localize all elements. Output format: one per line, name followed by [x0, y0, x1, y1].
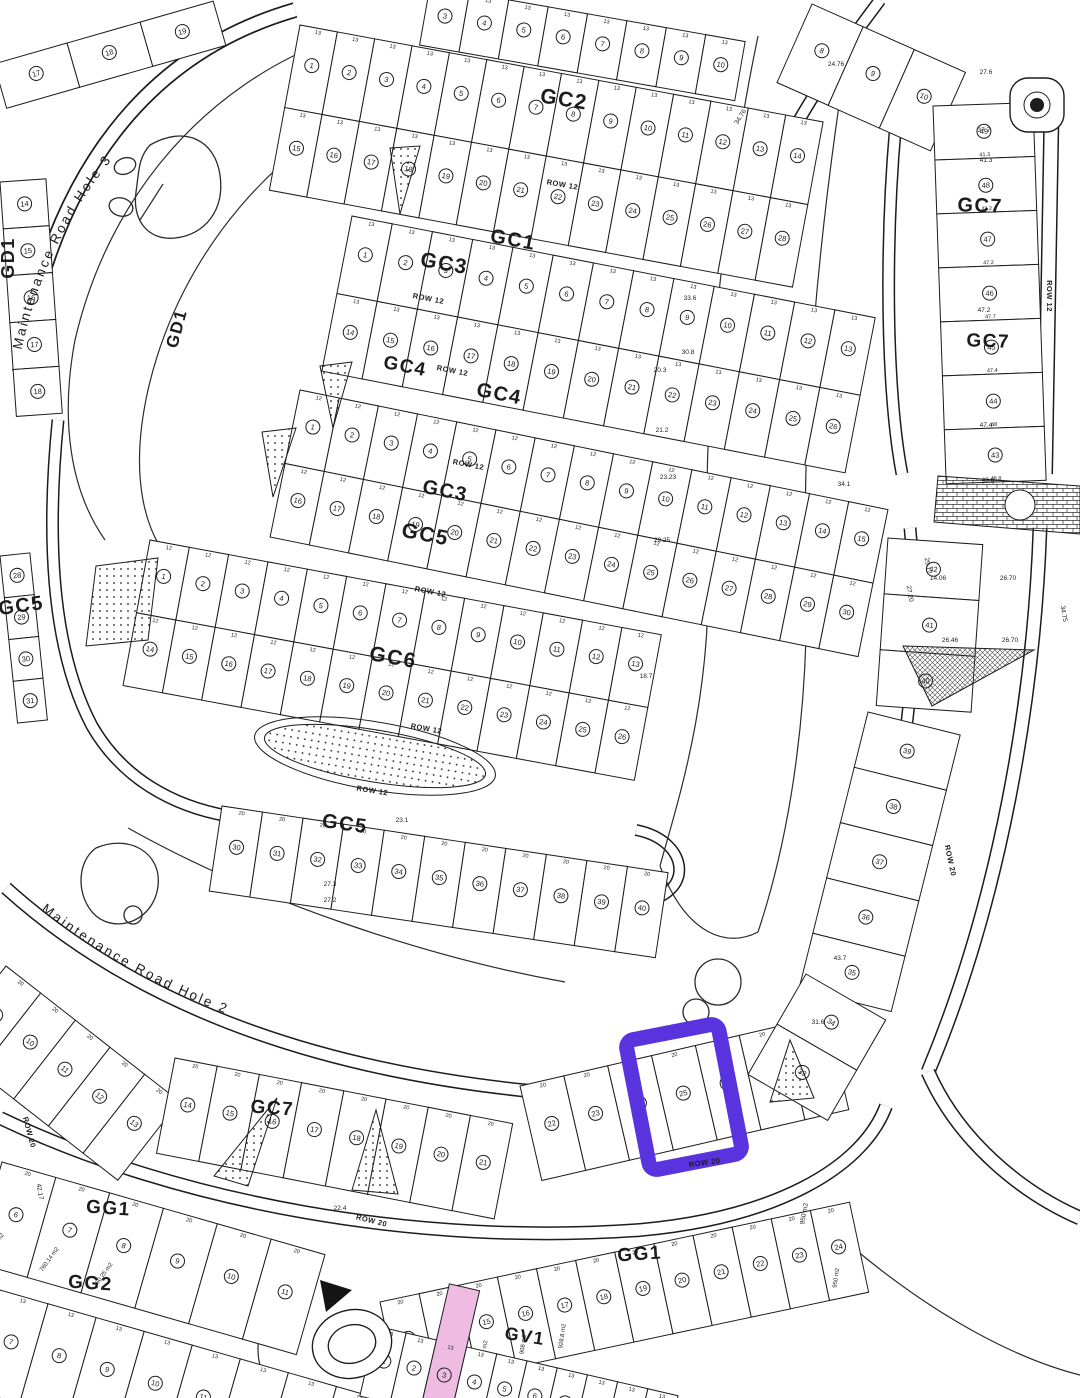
- lot-width-dim: 12: [637, 633, 644, 640]
- lot-width-dim: 12: [707, 475, 714, 482]
- lot-width-dim: 20: [522, 853, 529, 860]
- lot-width-dim: 13: [598, 168, 605, 175]
- lot-width-dim: 12: [574, 525, 581, 532]
- lot-width-dim: 13: [795, 385, 802, 392]
- lot-width-dim: 13: [374, 126, 381, 133]
- plot-number: 28: [13, 571, 22, 581]
- dimension-label: 23.23: [660, 474, 677, 481]
- row-marker-label: ROW 12: [356, 784, 389, 798]
- plot-number: 17: [332, 503, 342, 513]
- lot-width-dim: 13: [674, 361, 681, 368]
- lot-width-dim: 13: [554, 338, 561, 345]
- lot-width-dim: 13: [411, 133, 418, 140]
- row-marker-label: ROW 20: [943, 844, 958, 877]
- dimension-label: 43.7: [834, 955, 847, 962]
- lot-width-dim: 12: [270, 640, 277, 647]
- section-label-gc5-9: GC5: [0, 592, 45, 620]
- dimension-label: 34.1: [838, 481, 851, 488]
- plot-number: 20: [436, 1149, 446, 1159]
- plot-number: 16: [293, 495, 303, 505]
- dimension-label: 37.7: [978, 127, 991, 134]
- lot-width-dim: 13: [715, 369, 722, 376]
- plot-number: 12: [803, 336, 813, 346]
- section-label-gd1-11: GD1: [162, 307, 191, 350]
- lot-width-dim: 12: [427, 669, 434, 676]
- lot-width-dim: 12: [589, 451, 596, 458]
- roundabout-topright-center: [1030, 98, 1044, 112]
- lot-width-dim: 13: [682, 33, 689, 40]
- lot-width-dim: 12: [598, 625, 605, 632]
- plot-number: 17: [30, 340, 39, 350]
- section-label-gg1-17: GG1: [617, 1242, 663, 1266]
- lot-width-dim: 13: [730, 292, 737, 299]
- lot-width-dim: 20: [400, 835, 407, 842]
- plot-number: 21: [478, 1157, 488, 1167]
- lot-width-dim: 20: [514, 1274, 521, 1281]
- plot-number: 23: [567, 551, 577, 561]
- lot-width-dim: 12: [785, 491, 792, 498]
- road-bottomright-edge: [856, 1250, 1080, 1375]
- lot-width-dim: 12: [205, 552, 212, 559]
- dimension-label: 21.2: [656, 427, 669, 434]
- lot-width-dim: 12: [746, 483, 753, 490]
- plot-number: 16: [329, 150, 339, 160]
- lot-width-dim: 12: [323, 574, 330, 581]
- lot-width-dim: 20: [710, 1233, 717, 1240]
- hole3-green: [135, 136, 220, 238]
- plot-number: 43: [991, 450, 1000, 459]
- dimension-label: 22.4: [334, 1205, 347, 1212]
- lot-width-dim: 20: [279, 817, 286, 824]
- lot-width-dim: 13: [658, 1394, 665, 1398]
- lot-width-dim: 12: [362, 582, 369, 589]
- plot-number: 23: [708, 398, 718, 408]
- lot-width-dim: 13: [393, 307, 400, 314]
- road-corner-arc-fill: [928, 1072, 1080, 1218]
- plot-number: 47: [983, 235, 992, 244]
- plot-band-topleft-cells: 171819: [0, 1, 226, 108]
- dimension-label: 20.3: [654, 367, 667, 374]
- plot-number: 11: [552, 644, 561, 654]
- plot-number: 20: [478, 178, 488, 188]
- lot-width-dim: 12: [152, 618, 159, 625]
- lot-width-dim: 12: [354, 403, 361, 410]
- lot-width-dim: 13: [725, 106, 732, 113]
- lot-width-dim: 12: [864, 507, 871, 514]
- plot-number: 17: [309, 1124, 319, 1134]
- plot-number: 25: [788, 413, 798, 423]
- plot-number: 18: [371, 511, 381, 521]
- plot-number: 27: [740, 226, 750, 236]
- plot-number: 34: [394, 867, 404, 877]
- plot-number: 14: [145, 644, 155, 654]
- lot-width-dim: 13: [426, 51, 433, 58]
- plot-number: 31: [26, 696, 35, 706]
- lot-width-dim: 12: [511, 435, 518, 442]
- lot-width-dim: 13: [336, 119, 343, 126]
- dimension-label: 24.76: [828, 61, 845, 68]
- lot-width-dim: 13: [448, 237, 455, 244]
- plot-number: 24: [748, 405, 758, 415]
- section-label-gc7-14: GC7: [250, 1097, 295, 1121]
- plot-number: 16: [426, 343, 436, 353]
- plot-number: 19: [547, 366, 557, 376]
- dimension-label: 41.3: [980, 157, 993, 164]
- lot-width-dim: 13: [785, 202, 792, 209]
- dimension-label: 27.3: [324, 881, 337, 888]
- plot-number: 10: [716, 60, 726, 70]
- lot-width-dim: 12: [558, 618, 565, 625]
- lot-width-dim: 13: [594, 346, 601, 353]
- plot-number: 48: [981, 181, 990, 190]
- plot-number: 10: [661, 494, 671, 504]
- lot-width-dim: 13: [563, 12, 570, 19]
- lot-width-dim: 20: [441, 841, 448, 848]
- section-label-gc7-13: GC7: [966, 330, 1010, 353]
- plot-number: 14: [793, 151, 803, 161]
- plot-number: 30: [232, 842, 242, 852]
- lot-width-dim: 12: [433, 419, 440, 426]
- plot-number: 18: [302, 673, 312, 683]
- lot-width-dim: 20: [475, 1283, 482, 1290]
- dimension-label: 47.2: [978, 307, 991, 314]
- hole3-bunker-2: [107, 195, 135, 219]
- lot-width-dim: 12: [191, 625, 198, 632]
- lot-width-dim: 20: [553, 1266, 560, 1273]
- lot-width-dim: 13: [649, 276, 656, 283]
- lot-width-dim: 13: [486, 147, 493, 154]
- lot-width-dim: 20: [360, 1096, 367, 1103]
- plot-number: 14: [817, 526, 827, 536]
- plot-number: 15: [185, 651, 195, 661]
- plot-number: 19: [441, 171, 451, 181]
- hole3-flag-line: [140, 184, 163, 220]
- map-canvas[interactable]: 3134135136137138139131013113213313413513…: [0, 0, 1080, 1398]
- lot-width-dim: 13: [448, 140, 455, 147]
- plot-number: 38: [556, 891, 566, 901]
- road-label-maintenance-hole2: Maintenance Road Hole 2: [39, 901, 231, 1017]
- plot-number: 41: [925, 620, 934, 630]
- lot-width-dim: 12: [770, 565, 777, 572]
- lot-width-dim: 20: [192, 1063, 199, 1070]
- plot-number: 35: [434, 873, 444, 883]
- dimension-label: 26.46: [942, 637, 959, 644]
- plot-number: 19: [342, 681, 352, 691]
- plot-number: 22: [528, 543, 538, 553]
- lot-width-dim: 13: [650, 92, 657, 99]
- plot-number: 24: [538, 717, 548, 727]
- lot-width-dim: 12: [283, 567, 290, 574]
- plot-number: 13: [755, 144, 765, 154]
- lot-width-dim: 12: [300, 469, 307, 476]
- lot-width-dim: 12: [550, 443, 557, 450]
- lot-width-dim: 13: [851, 315, 858, 322]
- lot-width-dim: 13: [635, 175, 642, 182]
- lot-width-dim: 20: [827, 1208, 834, 1215]
- plot-number: 23: [499, 710, 509, 720]
- hole2-pond: [81, 843, 158, 924]
- lot-width-dim: 13: [524, 5, 531, 12]
- plot-number: 24: [628, 205, 638, 215]
- plot-number: 14: [20, 199, 29, 209]
- lot-width-dim: 13: [314, 30, 321, 37]
- plot-number: 18: [352, 1133, 362, 1143]
- lot-width-dim: 12: [506, 683, 513, 690]
- lot-width-dim: 20: [481, 847, 488, 854]
- road-corner-arc: [928, 1072, 1080, 1218]
- plot-stack-left-strip: 28293031: [0, 553, 47, 723]
- lot-width-dim: 13: [464, 58, 471, 65]
- plot-bands: 3134135136137138139131013113213313413513…: [0, 0, 965, 1398]
- plot-number: 10: [513, 637, 523, 647]
- section-label-gc7-12: GC7: [957, 194, 1003, 218]
- lot-width-dim: 13: [538, 71, 545, 78]
- lot-width-dim: 13: [710, 189, 717, 196]
- dimension-label: 27.2: [324, 897, 337, 904]
- lot-width-dim: 13: [673, 182, 680, 189]
- lot-width-dim: 13: [353, 299, 360, 306]
- lot-width-dim: 12: [244, 560, 251, 567]
- lot-width-dim: 12: [629, 459, 636, 466]
- crossing-roundabout: [1005, 490, 1035, 520]
- dimension-label: 14.06: [930, 575, 947, 582]
- lot-width-dim: 12: [480, 603, 487, 610]
- plot-number: 15: [225, 1108, 235, 1118]
- lot-width-dim: 12: [466, 676, 473, 683]
- dimension-label: 18.7: [640, 673, 653, 680]
- plot-number: 23: [590, 199, 600, 209]
- lot-width-dim: 20: [436, 1291, 443, 1298]
- lot-width-dim: 13: [688, 99, 695, 106]
- plot-number: 22: [667, 390, 677, 400]
- lot-width-dim: 12: [339, 477, 346, 484]
- lot-width-dim: 13: [642, 26, 649, 33]
- plot-band-arc-left: 9201020112012201320: [0, 966, 179, 1180]
- lot-width-dim: 12: [584, 698, 591, 705]
- lot-width-dim: 13: [770, 300, 777, 307]
- lot-width-dim: 12: [614, 533, 621, 540]
- lot-width-dim: 13: [810, 307, 817, 314]
- plot-number: 14: [345, 327, 355, 337]
- plot-number: 21: [516, 185, 526, 195]
- lot-width-dim: 13: [634, 354, 641, 361]
- plot-number: 18: [506, 359, 516, 369]
- plot-number: 30: [842, 607, 852, 617]
- dimension-label: 27.6: [980, 69, 993, 76]
- plot-number: 37: [516, 885, 526, 895]
- lot-width-dim: 13: [576, 78, 583, 85]
- dimension-label: 26.70: [1002, 637, 1019, 644]
- plot-number: 25: [646, 567, 656, 577]
- plot-number: 13: [843, 344, 853, 354]
- lot-width-dim: 20: [671, 1241, 678, 1248]
- dimension-label: 26.70: [1000, 575, 1017, 582]
- lot-width-dim: 20: [487, 1121, 494, 1128]
- plot-number: 28: [763, 591, 773, 601]
- plot-number: 20: [381, 688, 391, 698]
- lot-width-dim: 12: [545, 691, 552, 698]
- dimension-label: 29.25: [654, 537, 671, 544]
- plot-number: 27: [724, 583, 734, 593]
- lot-width-dim: 12: [825, 499, 832, 506]
- plot-number: 22: [460, 702, 470, 712]
- plot-number: 18: [33, 387, 42, 397]
- lot-width-dim: 12: [348, 654, 355, 661]
- plot-number: 10: [643, 123, 653, 133]
- plot-number: 17: [466, 351, 476, 361]
- plot-number: 12: [591, 651, 601, 661]
- lot-width-dim: 20: [403, 1105, 410, 1112]
- section-label-gg2-16: GG2: [67, 1271, 113, 1295]
- lot-width-dim: 12: [472, 427, 479, 434]
- lot-width-dim: 12: [810, 573, 817, 580]
- lot-width-dim: 13: [523, 154, 530, 161]
- plot-number: 26: [828, 421, 838, 431]
- plot-number: 16: [224, 659, 234, 669]
- plot-number: 19: [394, 1141, 404, 1151]
- plot-number: 26: [685, 575, 695, 585]
- lot-width-dim: 20: [788, 1216, 795, 1223]
- plot-number: 36: [475, 879, 485, 889]
- lot-width-dim: 13: [299, 112, 306, 119]
- plot-number: 17: [366, 157, 376, 167]
- lot-width-dim: 20: [562, 859, 569, 866]
- plot-number: 15: [292, 143, 302, 153]
- plot-number: 32: [313, 854, 323, 864]
- lot-width-dim: 20: [276, 1080, 283, 1087]
- lot-width-dim: 13: [352, 37, 359, 44]
- plot-number: 21: [420, 695, 430, 705]
- lot-width-dim: 13: [721, 40, 728, 47]
- plot-number: 15: [857, 534, 867, 544]
- plot-number: 11: [681, 130, 690, 140]
- lot-width-dim: 20: [238, 811, 245, 818]
- lot-width-dim: 13: [473, 322, 480, 329]
- plot-number: 46: [985, 289, 994, 298]
- plot-number: 39: [597, 897, 607, 907]
- row-marker-label: ROW 12: [1045, 280, 1054, 312]
- plot-number: 15: [386, 335, 396, 345]
- lot-width-dim: 13: [763, 113, 770, 120]
- lot-width-dim: 13: [433, 314, 440, 321]
- lot-depth-dim: 47.4: [987, 368, 998, 374]
- section-label-gg1-15: GG1: [85, 1196, 131, 1220]
- plot-number: 24: [606, 559, 616, 569]
- lot-width-dim: 12: [315, 395, 322, 402]
- lot-depth-dim: 47.7: [985, 314, 996, 320]
- lot-width-dim: 12: [496, 509, 503, 516]
- lot-width-dim: 12: [849, 580, 856, 587]
- dimension-label: 33.6: [684, 295, 697, 302]
- lot-width-dim: 12: [692, 549, 699, 556]
- lot-width-dim: 13: [603, 19, 610, 26]
- lot-depth-dim: 47.2: [983, 260, 994, 266]
- lot-width-dim: 12: [401, 589, 408, 596]
- section-label-gd1-10: GD1: [0, 237, 18, 279]
- plot-number: 12: [718, 137, 728, 147]
- lot-width-dim: 13: [569, 260, 576, 267]
- lot-width-dim: 12: [519, 611, 526, 618]
- plot-number: 33: [353, 861, 363, 871]
- putting-green-circle: [695, 959, 741, 1005]
- lot-width-dim: 12: [393, 411, 400, 418]
- lot-width-dim: 12: [624, 705, 631, 712]
- lot-width-dim: 13: [514, 330, 521, 337]
- lot-width-dim: 13: [835, 393, 842, 400]
- lot-width-dim: 13: [690, 284, 697, 291]
- lot-width-dim: 12: [165, 545, 172, 552]
- plot-number: 31: [272, 848, 282, 858]
- lot-width-dim: 12: [230, 632, 237, 639]
- lot-width-dim: 13: [560, 161, 567, 168]
- dimension-label: 34.75: [1059, 605, 1069, 623]
- north-arrow-triangle: [320, 1280, 352, 1312]
- plot-stack-gc7-lower: 3938373635: [799, 712, 960, 1012]
- lot-width-dim: 12: [378, 485, 385, 492]
- plot-number: 10: [723, 320, 733, 330]
- dimension-label: 48.8: [982, 477, 995, 484]
- plat-map: 3134135136137138139131013113213313413513…: [0, 0, 1080, 1398]
- plot-number: 22: [553, 192, 563, 202]
- plot-number: 20: [450, 527, 460, 537]
- lot-width-dim: 20: [445, 1113, 452, 1120]
- plot-number: 25: [665, 212, 675, 222]
- lot-width-dim: 13: [609, 268, 616, 275]
- lot-width-dim: 20: [234, 1072, 241, 1079]
- plot-number: 17: [263, 666, 273, 676]
- plot-number: 12: [739, 510, 749, 520]
- plot-number: 29: [802, 599, 812, 609]
- plot-number: 13: [778, 518, 788, 528]
- lot-width-dim: 13: [389, 44, 396, 51]
- dimension-label: 47.4: [980, 422, 993, 429]
- lot-width-dim: 20: [397, 1299, 404, 1306]
- plot-number: 28: [777, 233, 787, 243]
- lot-width-dim: 13: [800, 120, 807, 127]
- lot-width-dim: 12: [309, 647, 316, 654]
- plot-number: 13: [631, 659, 641, 669]
- plot-number: 11: [198, 1392, 208, 1398]
- lot-width-dim: 20: [644, 871, 651, 878]
- plot-number: 20: [587, 374, 597, 384]
- lot-width-dim: 20: [603, 865, 610, 872]
- plot-number: 26: [703, 219, 713, 229]
- plot-number: 25: [578, 724, 588, 734]
- plot-band-gc5-lower-row: 3020312032203320342035203620372038203920…: [209, 806, 668, 958]
- lot-width-dim: 12: [535, 517, 542, 524]
- lot-width-dim: 13: [755, 377, 762, 384]
- svg-text:Maintenance Road Hole 2: Maintenance Road Hole 2: [39, 901, 231, 1017]
- plot-number: 30: [21, 654, 30, 664]
- lot-width-dim: 13: [368, 221, 375, 228]
- lot-width-dim: 20: [318, 1088, 325, 1095]
- plot-number: 14: [183, 1100, 193, 1110]
- lot-width-dim: 20: [593, 1258, 600, 1265]
- plot-number: 15: [23, 246, 32, 256]
- dimension-label: 31.6: [812, 1019, 825, 1026]
- plot-number: 21: [627, 382, 637, 392]
- plot-number: 21: [489, 535, 499, 545]
- hole3-bunker-1: [112, 155, 138, 178]
- plot-number: 26: [617, 732, 627, 742]
- dimension-label: 23.1: [396, 817, 409, 824]
- lot-width-dim: 13: [408, 229, 415, 236]
- lot-width-dim: 13: [613, 85, 620, 92]
- dimension-label: 30.8: [682, 349, 695, 356]
- plot-number: 40: [637, 903, 647, 913]
- plot-number: 44: [989, 397, 998, 406]
- lot-width-dim: 13: [501, 64, 508, 71]
